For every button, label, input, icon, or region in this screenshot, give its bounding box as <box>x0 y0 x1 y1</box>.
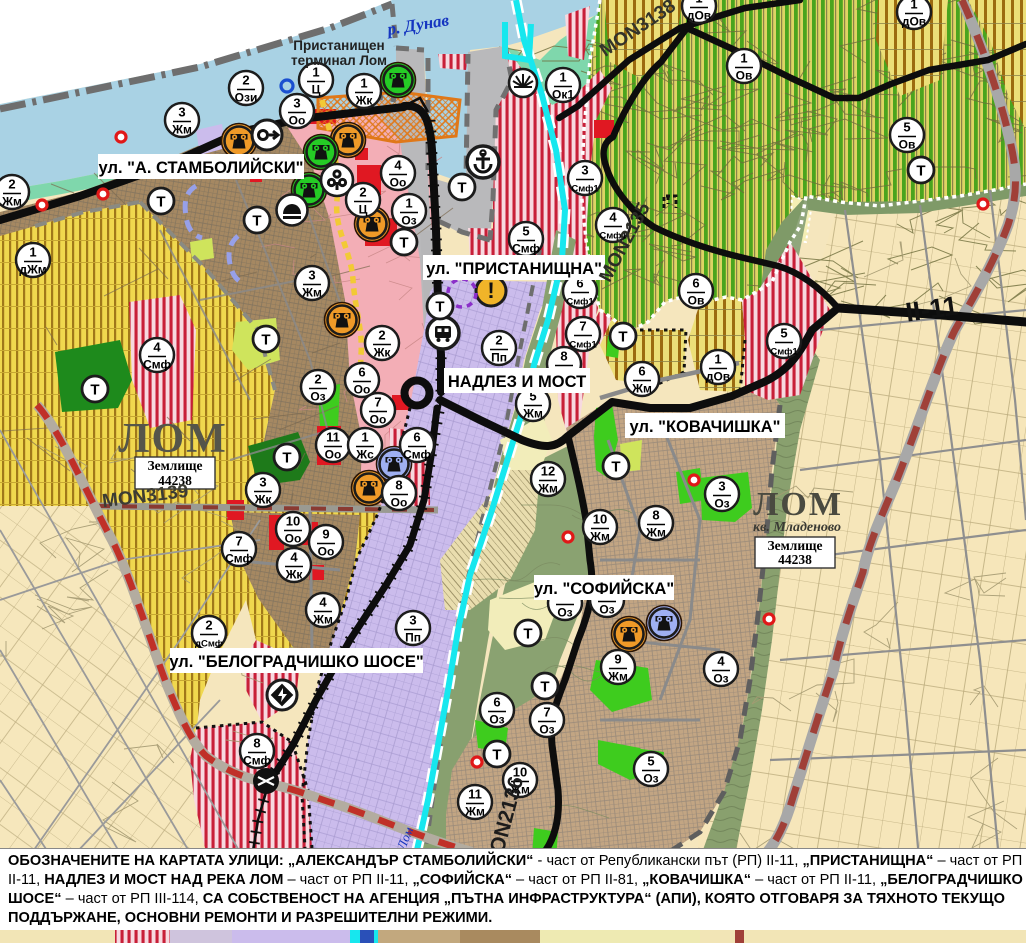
svg-text:2: 2 <box>359 185 366 200</box>
svg-text:Оз: Оз <box>714 497 729 511</box>
svg-text:8: 8 <box>652 508 659 523</box>
svg-text:Т: Т <box>156 194 165 211</box>
svg-text:1: 1 <box>405 196 412 211</box>
svg-text:Т: Т <box>611 459 620 476</box>
svg-text:Ов: Ов <box>688 294 705 308</box>
svg-text:4: 4 <box>290 550 298 565</box>
svg-text:Жм: Жм <box>171 123 192 137</box>
svg-text:7: 7 <box>543 705 550 720</box>
svg-text:9: 9 <box>614 652 621 667</box>
svg-text:!: ! <box>487 278 494 303</box>
svg-text:Т: Т <box>618 329 627 346</box>
svg-text:ЛОМ: ЛОМ <box>118 416 228 462</box>
svg-text:Ок1: Ок1 <box>552 88 574 102</box>
svg-text:Жк: Жк <box>285 568 304 582</box>
svg-text:ул. "А. СТАМБОЛИЙСКИ": ул. "А. СТАМБОЛИЙСКИ" <box>99 158 304 177</box>
svg-text:Жм: Жм <box>522 407 543 421</box>
svg-text:Оо: Оо <box>354 383 371 397</box>
svg-text:Оз: Оз <box>599 603 614 617</box>
svg-text:1: 1 <box>29 245 36 260</box>
svg-text:ЛОМ: ЛОМ <box>753 486 843 523</box>
svg-text:2: 2 <box>242 73 249 88</box>
svg-text:7: 7 <box>235 534 242 549</box>
svg-text:терминал Лом: терминал Лом <box>291 53 387 68</box>
svg-text:Т: Т <box>435 299 444 316</box>
svg-text:Смф1: Смф1 <box>566 297 594 308</box>
svg-text:11: 11 <box>468 787 482 802</box>
svg-text:Т: Т <box>90 382 99 399</box>
svg-text:Оз: Оз <box>539 723 554 737</box>
svg-text:Землище: Землище <box>147 458 202 473</box>
svg-text:5: 5 <box>647 754 654 769</box>
svg-text:8: 8 <box>253 736 260 751</box>
svg-text:НАДЛЕЗ И МОСТ: НАДЛЕЗ И МОСТ <box>448 373 586 391</box>
svg-text:Ов: Ов <box>736 69 753 83</box>
svg-text:Ц: Ц <box>312 83 321 97</box>
svg-text:ул. "БЕЛОГРАДЧИШКО ШОСЕ": ул. "БЕЛОГРАДЧИШКО ШОСЕ" <box>169 653 423 671</box>
svg-text:44238: 44238 <box>778 552 812 567</box>
svg-text:12: 12 <box>541 464 555 479</box>
svg-text:6: 6 <box>358 365 365 380</box>
svg-text:дОв: дОв <box>902 15 926 29</box>
svg-text:Пристанищен: Пристанищен <box>293 38 384 53</box>
svg-text:3: 3 <box>178 105 185 120</box>
svg-text:8: 8 <box>560 349 567 364</box>
svg-text:1: 1 <box>559 70 566 85</box>
svg-text:Оз: Оз <box>489 713 504 727</box>
svg-text:6: 6 <box>493 695 500 710</box>
svg-text:3: 3 <box>409 613 416 628</box>
svg-text:2: 2 <box>205 618 212 633</box>
svg-text:2: 2 <box>495 333 502 348</box>
svg-text:Смф1: Смф1 <box>770 347 798 358</box>
svg-text:6: 6 <box>413 430 420 445</box>
svg-text:2: 2 <box>8 177 15 192</box>
svg-text:11: 11 <box>326 430 340 445</box>
svg-text:4: 4 <box>394 158 402 173</box>
svg-text:Жк: Жк <box>355 94 374 108</box>
svg-text:Оз: Оз <box>401 214 416 228</box>
svg-text:Т: Т <box>540 679 549 696</box>
svg-text:Т: Т <box>916 163 925 180</box>
svg-text:Жс: Жс <box>355 448 374 462</box>
svg-text:Оо: Оо <box>391 496 408 510</box>
svg-text:7: 7 <box>579 319 586 334</box>
svg-text:Оо: Оо <box>318 545 335 559</box>
svg-text:3: 3 <box>718 479 725 494</box>
svg-text:10: 10 <box>593 512 607 527</box>
svg-text:Т: Т <box>523 626 532 643</box>
svg-text:дЖм: дЖм <box>19 263 46 277</box>
svg-text:кв. Младеново: кв. Младеново <box>753 520 841 535</box>
svg-text:1: 1 <box>360 76 367 91</box>
svg-text:Оо: Оо <box>325 448 342 462</box>
svg-text:Т: Т <box>282 450 291 467</box>
svg-text:Жм: Жм <box>1 195 22 209</box>
svg-text:4: 4 <box>153 340 161 355</box>
svg-text:Оо: Оо <box>370 413 387 427</box>
svg-text:Оз: Оз <box>310 390 325 404</box>
svg-text:1: 1 <box>361 430 368 445</box>
svg-text:Жк: Жк <box>254 493 273 507</box>
svg-text:Пп: Пп <box>405 631 421 645</box>
svg-text:Оз: Оз <box>713 672 728 686</box>
svg-text:дОв: дОв <box>706 370 730 384</box>
svg-text:4: 4 <box>717 654 725 669</box>
svg-text:Оо: Оо <box>289 114 306 128</box>
svg-text:4: 4 <box>319 595 327 610</box>
svg-text:7: 7 <box>374 395 381 410</box>
svg-text:Т: Т <box>261 332 270 349</box>
svg-text:Т: Т <box>399 235 408 252</box>
svg-text:Оз: Оз <box>643 772 658 786</box>
svg-text:Смф: Смф <box>243 754 271 768</box>
svg-text:1: 1 <box>695 0 702 6</box>
svg-text:Жк: Жк <box>373 346 392 360</box>
svg-text:Пп: Пп <box>491 351 507 365</box>
svg-text:Жм: Жм <box>589 530 610 544</box>
svg-text:Оо: Оо <box>285 532 302 546</box>
svg-text:5: 5 <box>522 224 529 239</box>
svg-text:Оо: Оо <box>390 176 407 190</box>
svg-text:1: 1 <box>910 0 917 12</box>
svg-text:Смф: Смф <box>512 242 540 256</box>
svg-text:Жм: Жм <box>537 482 558 496</box>
svg-text:дСмф: дСмф <box>195 639 223 650</box>
svg-text:3: 3 <box>581 163 588 178</box>
svg-text:Землище: Землище <box>767 538 822 553</box>
svg-text:Смф: Смф <box>143 358 171 372</box>
svg-text:Смф: Смф <box>403 448 431 462</box>
svg-text:Т: Т <box>252 213 261 230</box>
svg-text:Ов: Ов <box>899 138 916 152</box>
svg-text:3: 3 <box>259 475 266 490</box>
svg-text:Жм: Жм <box>464 805 485 819</box>
svg-text:Жм: Жм <box>312 613 333 627</box>
svg-text:9: 9 <box>322 527 329 542</box>
svg-text:6: 6 <box>638 364 645 379</box>
svg-text:2: 2 <box>378 328 385 343</box>
svg-text:Жм: Жм <box>645 526 666 540</box>
svg-text:дОв: дОв <box>687 9 711 23</box>
svg-text:Оз: Оз <box>557 606 572 620</box>
svg-text:Жм: Жм <box>607 670 628 684</box>
svg-text:Жм: Жм <box>631 382 652 396</box>
svg-text:Ц: Ц <box>359 203 368 217</box>
svg-text:Смф1: Смф1 <box>571 184 599 195</box>
svg-text:ул. "ПРИСТАНИЩНА": ул. "ПРИСТАНИЩНА" <box>426 260 602 278</box>
svg-text:6: 6 <box>692 276 699 291</box>
svg-text:Ози: Ози <box>235 91 258 105</box>
svg-text:Смф: Смф <box>225 552 253 566</box>
svg-text:4: 4 <box>609 210 617 225</box>
svg-text:10: 10 <box>286 514 300 529</box>
svg-text:ул. "СОФИЙСКА": ул. "СОФИЙСКА" <box>534 579 674 598</box>
svg-text:1: 1 <box>740 51 747 66</box>
svg-text:5: 5 <box>780 326 787 341</box>
svg-text:5: 5 <box>903 120 910 135</box>
svg-text:Т: Т <box>492 747 501 764</box>
svg-text:Жм: Жм <box>301 286 322 300</box>
svg-text:8: 8 <box>395 478 402 493</box>
svg-text:3: 3 <box>293 96 300 111</box>
svg-text:1: 1 <box>714 352 721 367</box>
svg-text:2: 2 <box>314 372 321 387</box>
svg-text:3: 3 <box>308 268 315 283</box>
svg-text:Т: Т <box>457 180 466 197</box>
svg-text:ул. "КОВАЧИШКА": ул. "КОВАЧИШКА" <box>630 418 781 436</box>
